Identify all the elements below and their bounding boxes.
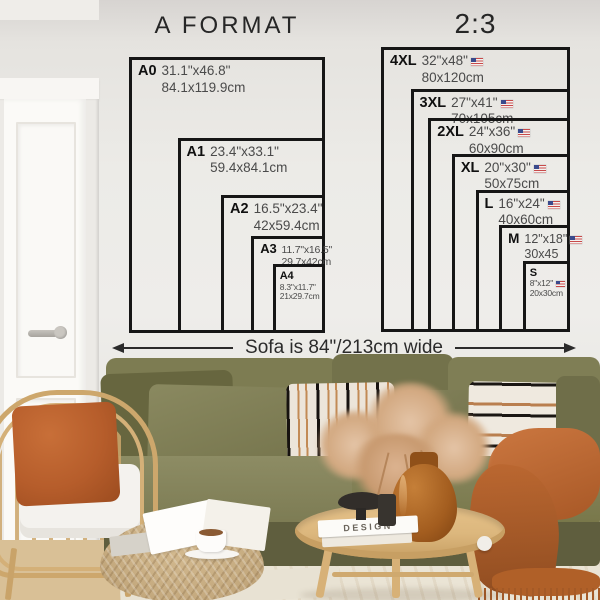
size-cm: 84.1x119.9cm xyxy=(162,80,246,95)
size-code: 4XL xyxy=(390,53,417,70)
size-label: XL20"x30"50x75cm xyxy=(455,157,567,192)
size-code: L xyxy=(485,196,494,213)
size-inches-wrap: 27"x41" xyxy=(451,95,513,110)
table-leg xyxy=(392,556,400,598)
us-flag-icon xyxy=(534,165,546,173)
size-inches: 12"x18" xyxy=(524,232,567,246)
wall-band xyxy=(0,0,99,20)
size-label: S8"x12"20x30cm xyxy=(526,264,567,299)
a-format-title: A FORMAT xyxy=(129,12,325,40)
table-stretcher xyxy=(332,572,474,577)
size-inches-wrap: 31.1"x46.8" xyxy=(162,63,246,78)
size-inches: 32"x48" xyxy=(422,53,468,68)
decor-sphere xyxy=(477,536,492,551)
size-inches: 31.1"x46.8" xyxy=(162,63,231,78)
size-inches: 23.4"x33.1" xyxy=(210,144,279,159)
sofa-width-label: Sofa is 84"/213cm wide xyxy=(245,337,443,359)
size-inches: 20"x30" xyxy=(484,160,530,175)
us-flag-icon xyxy=(548,201,560,209)
us-flag-icon xyxy=(518,129,530,137)
size-code: M xyxy=(508,231,519,246)
coffee-surface xyxy=(199,529,223,536)
size-cm: 20x30cm xyxy=(530,289,565,299)
us-flag-icon xyxy=(501,100,513,108)
size-code: A2 xyxy=(230,201,249,218)
size-label: A216.5"x23.4"42x59.4cm xyxy=(224,198,322,233)
us-flag-icon xyxy=(570,236,582,244)
bowl-stem xyxy=(356,508,366,520)
door-lintel xyxy=(0,78,99,99)
size-label: A031.1"x46.8"84.1x119.9cm xyxy=(132,60,322,95)
size-rect-a4: A48.3"x11.7"21x29.7cm xyxy=(273,264,325,333)
arrow-left-head-icon xyxy=(112,343,124,353)
size-label: L16"x24"40x60cm xyxy=(479,193,568,228)
size-cm: 21x29.7cm xyxy=(280,292,320,302)
us-flag-icon xyxy=(556,281,565,287)
size-label: A123.4"x33.1"59.4x84.1cm xyxy=(181,141,322,176)
size-cm: 80x120cm xyxy=(422,70,484,85)
rust-pillow xyxy=(11,401,120,506)
candle-holder xyxy=(378,494,396,526)
size-code: A0 xyxy=(138,63,157,80)
size-inches: 11.7"x16.5" xyxy=(281,244,332,256)
size-inches-wrap: 11.7"x16.5" xyxy=(281,245,332,257)
size-inches-wrap: 16.5"x23.4" xyxy=(254,201,323,216)
size-code: A3 xyxy=(260,242,276,257)
size-inches: 8"x12" xyxy=(530,278,553,288)
a-format-diagram: A031.1"x46.8"84.1x119.9cmA123.4"x33.1"59… xyxy=(129,57,325,333)
size-inches: 24"x36" xyxy=(469,124,515,139)
size-label: M12"x18"30x45 xyxy=(502,228,567,261)
size-inches: 16.5"x23.4" xyxy=(254,201,323,216)
arrow-line xyxy=(455,347,564,349)
size-label: 2XL24"x36"60x90cm xyxy=(431,121,567,156)
size-cm: 42x59.4cm xyxy=(254,218,323,233)
size-code: 3XL xyxy=(420,95,447,112)
us-flag-icon xyxy=(471,58,483,66)
ratio-2-3-diagram: 4XL32"x48"80x120cm3XL27"x41"70x105cm2XL2… xyxy=(381,47,570,332)
size-inches: 16"x24" xyxy=(498,196,544,211)
size-label: A48.3"x11.7"21x29.7cm xyxy=(276,267,322,302)
size-inches: 8.3"x11.7" xyxy=(280,282,316,292)
arrow-line xyxy=(124,347,233,349)
size-inches-wrap: 16"x24" xyxy=(498,196,559,211)
size-inches-wrap: 12"x18" xyxy=(524,232,582,246)
size-cm: 59.4x84.1cm xyxy=(210,160,287,175)
size-code: 2XL xyxy=(437,124,464,141)
size-code: XL xyxy=(461,160,480,177)
size-cm: 30x45 xyxy=(524,247,582,261)
arrow-right-head-icon xyxy=(564,343,576,353)
size-inches-wrap: 32"x48" xyxy=(422,53,484,68)
size-inches-wrap: 20"x30" xyxy=(484,160,545,175)
size-code: A1 xyxy=(187,144,206,161)
door-panel-upper xyxy=(16,122,76,378)
size-inches: 27"x41" xyxy=(451,95,497,110)
size-rect-s: S8"x12"20x30cm xyxy=(523,261,570,332)
door-handle-rosette xyxy=(54,326,67,339)
ratio-2-3-title: 2:3 xyxy=(381,8,570,40)
size-inches-wrap: 23.4"x33.1" xyxy=(210,144,287,159)
poster-size-guide-scene: DESIGN A FORMAT 2:3 A031.1"x46.8"84.1x11… xyxy=(0,0,600,600)
size-label: 4XL32"x48"80x120cm xyxy=(384,50,567,85)
size-inches-wrap: 24"x36" xyxy=(469,124,530,139)
sofa-width-arrow: Sofa is 84"/213cm wide xyxy=(112,337,576,359)
